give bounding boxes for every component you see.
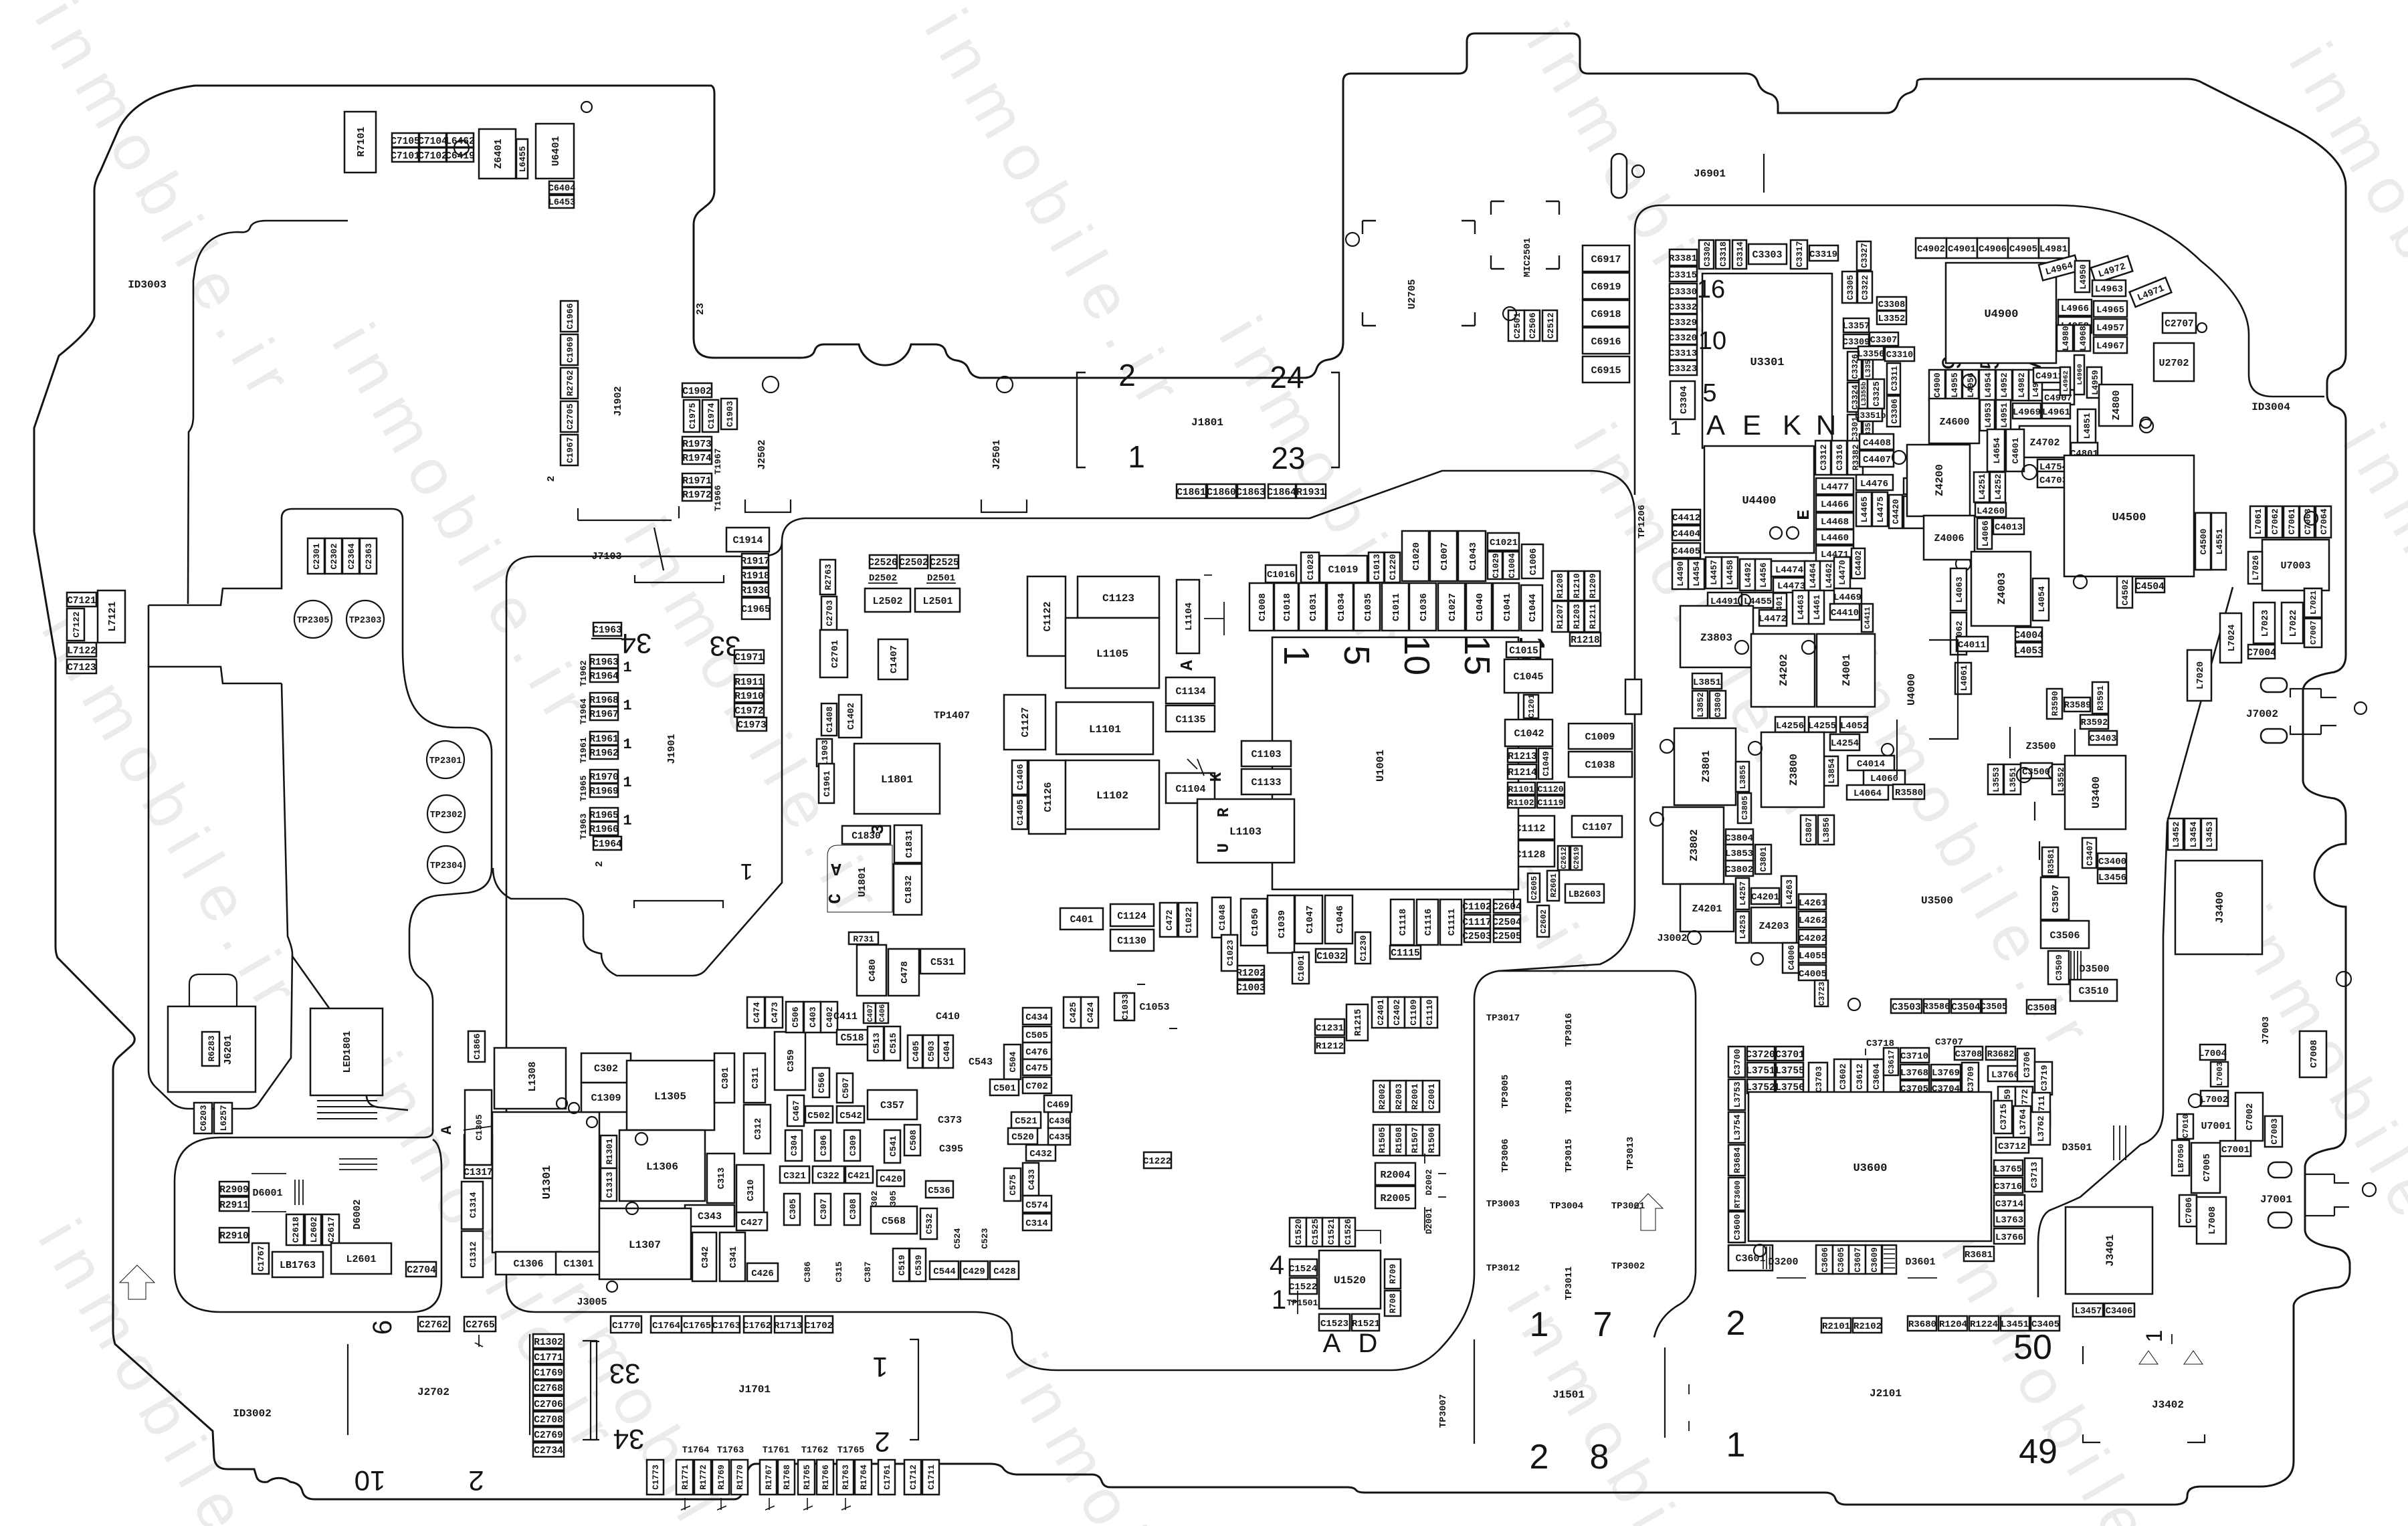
svg-text:L4980: L4980 bbox=[2062, 326, 2071, 351]
svg-text:C359: C359 bbox=[786, 1049, 797, 1072]
svg-text:L6462: L6462 bbox=[445, 136, 475, 147]
svg-text:L4458: L4458 bbox=[1726, 560, 1735, 585]
svg-text:K: K bbox=[1783, 409, 1801, 441]
svg-text:R1931: R1931 bbox=[1296, 487, 1326, 498]
svg-text:C3311: C3311 bbox=[1890, 366, 1900, 391]
svg-text:C428: C428 bbox=[993, 1267, 1016, 1277]
svg-text:C7101: C7101 bbox=[391, 151, 420, 162]
svg-text:R3684: R3684 bbox=[1732, 1147, 1742, 1173]
svg-text:C1975: C1975 bbox=[688, 403, 698, 429]
svg-text:23: 23 bbox=[695, 303, 706, 315]
svg-text:C2703: C2703 bbox=[825, 600, 835, 626]
svg-text:J6201: J6201 bbox=[223, 1034, 234, 1065]
svg-text:C3330: C3330 bbox=[1669, 287, 1697, 298]
svg-text:C1231: C1231 bbox=[1316, 1023, 1344, 1034]
svg-text:R1772: R1772 bbox=[699, 1464, 708, 1490]
svg-text:C7002: C7002 bbox=[2245, 1103, 2255, 1131]
svg-text:R1505: R1505 bbox=[1377, 1127, 1387, 1153]
svg-text:D2001: D2001 bbox=[1424, 1208, 1434, 1234]
svg-text:C1009: C1009 bbox=[1585, 732, 1615, 743]
svg-text:Z4201: Z4201 bbox=[1692, 903, 1722, 915]
svg-text:L4967: L4967 bbox=[2096, 341, 2124, 352]
svg-text:C1048: C1048 bbox=[1217, 904, 1227, 930]
svg-text:C387: C387 bbox=[863, 1261, 873, 1282]
svg-text:C6918: C6918 bbox=[1591, 309, 1621, 320]
svg-text:L4654: L4654 bbox=[1992, 437, 2002, 463]
svg-text:J1801: J1801 bbox=[1191, 417, 1223, 429]
svg-text:R709: R709 bbox=[1389, 1264, 1398, 1284]
svg-text:C1126: C1126 bbox=[1043, 782, 1054, 812]
svg-text:C1110: C1110 bbox=[1425, 999, 1435, 1025]
svg-text:L4952: L4952 bbox=[2000, 372, 2009, 398]
svg-text:C1230: C1230 bbox=[1359, 935, 1369, 961]
svg-text:C3322: C3322 bbox=[1861, 275, 1870, 300]
svg-text:3: 3 bbox=[868, 824, 888, 835]
svg-text:C3807: C3807 bbox=[1805, 817, 1814, 843]
svg-text:C1313: C1313 bbox=[605, 1172, 615, 1198]
svg-text:C357: C357 bbox=[880, 1100, 904, 1111]
svg-text:L4263: L4263 bbox=[1785, 879, 1795, 905]
svg-text:C7061: C7061 bbox=[2287, 508, 2297, 534]
svg-text:C4502: C4502 bbox=[2120, 579, 2130, 605]
svg-text:L4066: L4066 bbox=[1981, 520, 1991, 546]
svg-text:R1970: R1970 bbox=[589, 772, 619, 783]
svg-text:C1201: C1201 bbox=[1527, 694, 1536, 718]
svg-text:C502: C502 bbox=[807, 1111, 830, 1121]
svg-text:L1801: L1801 bbox=[881, 774, 913, 786]
svg-text:C4500: C4500 bbox=[2199, 528, 2209, 554]
svg-text:R2002: R2002 bbox=[1377, 1083, 1387, 1109]
svg-text:C1036: C1036 bbox=[1419, 593, 1429, 621]
svg-text:D2502: D2502 bbox=[869, 573, 897, 584]
svg-text:R1968: R1968 bbox=[589, 695, 619, 706]
svg-text:C4405: C4405 bbox=[1672, 546, 1700, 557]
svg-text:C4905: C4905 bbox=[2009, 244, 2037, 255]
svg-text:C401: C401 bbox=[1070, 915, 1094, 925]
svg-text:L3768: L3768 bbox=[1900, 1068, 1928, 1079]
svg-text:L2602: L2602 bbox=[309, 1216, 319, 1242]
svg-text:C3314: C3314 bbox=[1736, 241, 1745, 267]
svg-text:Z4202: Z4202 bbox=[1778, 654, 1790, 686]
svg-text:C1967: C1967 bbox=[565, 437, 575, 463]
svg-text:C4006: C4006 bbox=[1787, 945, 1797, 970]
svg-text:C2364: C2364 bbox=[346, 543, 357, 569]
svg-text:C3327: C3327 bbox=[1860, 243, 1870, 268]
svg-text:J1501: J1501 bbox=[1552, 1389, 1585, 1401]
svg-text:C1111: C1111 bbox=[1447, 909, 1458, 936]
svg-text:C1767: C1767 bbox=[256, 1245, 266, 1271]
svg-text:L1105: L1105 bbox=[1096, 648, 1128, 660]
svg-text:T1967: T1967 bbox=[713, 448, 723, 474]
svg-text:C1524: C1524 bbox=[1289, 1264, 1317, 1275]
svg-text:C427: C427 bbox=[740, 1218, 763, 1228]
svg-text:R1209: R1209 bbox=[1589, 573, 1598, 598]
svg-text:C1116: C1116 bbox=[1424, 909, 1434, 936]
svg-text:C575: C575 bbox=[1008, 1174, 1018, 1195]
svg-text:L4470: L4470 bbox=[1838, 560, 1847, 585]
svg-text:D6001: D6001 bbox=[252, 1188, 282, 1199]
svg-text:C3308: C3308 bbox=[1878, 300, 1906, 310]
svg-text:C7004: C7004 bbox=[2247, 648, 2276, 659]
svg-text:C519: C519 bbox=[897, 1255, 907, 1275]
svg-text:C1020: C1020 bbox=[1411, 542, 1422, 570]
svg-text:C7001: C7001 bbox=[2221, 1145, 2249, 1156]
svg-text:J1901: J1901 bbox=[666, 734, 678, 764]
svg-text:C1018: C1018 bbox=[1282, 593, 1293, 621]
svg-text:L4456: L4456 bbox=[1759, 562, 1769, 588]
svg-text:TP1206: TP1206 bbox=[1637, 505, 1647, 538]
svg-text:R1301: R1301 bbox=[605, 1138, 615, 1164]
svg-text:C2701: C2701 bbox=[830, 640, 841, 668]
svg-text:L3763: L3763 bbox=[1995, 1215, 2023, 1226]
svg-text:TP3005: TP3005 bbox=[1500, 1075, 1511, 1108]
svg-text:C308: C308 bbox=[848, 1198, 858, 1219]
svg-text:R3590: R3590 bbox=[2051, 691, 2060, 716]
svg-text:TP3002: TP3002 bbox=[1611, 1261, 1645, 1272]
svg-text:Z4800: Z4800 bbox=[2111, 390, 2122, 420]
svg-text:C2301: C2301 bbox=[312, 543, 322, 569]
svg-text:C410: C410 bbox=[936, 1011, 960, 1022]
svg-text:C4420: C4420 bbox=[1892, 499, 1901, 524]
svg-text:L4477: L4477 bbox=[1821, 482, 1849, 493]
svg-text:C1405: C1405 bbox=[1015, 799, 1025, 825]
svg-text:C1046: C1046 bbox=[1335, 905, 1346, 934]
svg-text:C4005: C4005 bbox=[1799, 969, 1827, 980]
svg-text:C3715: C3715 bbox=[1999, 1103, 2009, 1129]
svg-text:C311: C311 bbox=[751, 1067, 761, 1089]
svg-text:C3713: C3713 bbox=[2029, 1162, 2039, 1188]
svg-text:R1769: R1769 bbox=[717, 1464, 726, 1490]
svg-text:L1305: L1305 bbox=[654, 1091, 686, 1103]
svg-text:L4963: L4963 bbox=[2095, 284, 2123, 295]
svg-text:L4260: L4260 bbox=[1977, 506, 2005, 517]
svg-text:C3310: C3310 bbox=[1886, 350, 1914, 360]
svg-text:C341: C341 bbox=[729, 1246, 739, 1268]
svg-text:J2101: J2101 bbox=[1870, 1388, 1902, 1400]
svg-text:L7002: L7002 bbox=[2200, 1095, 2228, 1105]
svg-text:R1770: R1770 bbox=[736, 1464, 745, 1490]
svg-text:D: D bbox=[1359, 1329, 1378, 1358]
svg-text:C3801: C3801 bbox=[1759, 847, 1769, 872]
svg-text:C524: C524 bbox=[952, 1228, 963, 1248]
svg-text:C3712: C3712 bbox=[1998, 1141, 2026, 1152]
svg-text:R3589: R3589 bbox=[2064, 701, 2092, 711]
svg-text:C4911: C4911 bbox=[2035, 371, 2064, 382]
svg-text:L4054: L4054 bbox=[2037, 586, 2047, 612]
svg-text:C3600: C3600 bbox=[1732, 1214, 1742, 1240]
svg-text:10: 10 bbox=[1698, 327, 1726, 355]
svg-text:L3457: L3457 bbox=[2075, 1307, 2102, 1317]
svg-text:C539: C539 bbox=[914, 1255, 924, 1275]
svg-text:1: 1 bbox=[623, 812, 631, 829]
svg-text:L3769: L3769 bbox=[1932, 1068, 1960, 1079]
svg-text:L3852: L3852 bbox=[1696, 692, 1706, 718]
svg-text:C1762: C1762 bbox=[743, 1321, 771, 1331]
svg-text:ID3003: ID3003 bbox=[128, 279, 167, 291]
svg-text:R1713: R1713 bbox=[774, 1321, 802, 1331]
svg-text:C3329: C3329 bbox=[1669, 318, 1697, 328]
svg-text:J7002: J7002 bbox=[2246, 708, 2278, 720]
svg-text:L7020: L7020 bbox=[2195, 661, 2206, 689]
svg-text:L4472: L4472 bbox=[1759, 614, 1787, 625]
svg-text:L1308: L1308 bbox=[527, 1061, 538, 1091]
svg-text:L6257: L6257 bbox=[219, 1105, 229, 1131]
svg-text:C521: C521 bbox=[1015, 1116, 1037, 1127]
svg-text:C4410: C4410 bbox=[1831, 608, 1859, 619]
svg-text:C4202: C4202 bbox=[1799, 934, 1827, 944]
svg-text:J6901: J6901 bbox=[1694, 168, 1726, 180]
svg-text:L3762: L3762 bbox=[2036, 1115, 2046, 1141]
svg-text:C307: C307 bbox=[819, 1198, 829, 1219]
svg-text:R1766: R1766 bbox=[821, 1464, 831, 1490]
svg-text:R2601: R2601 bbox=[1549, 873, 1559, 897]
svg-text:L4950: L4950 bbox=[2079, 264, 2088, 290]
svg-text:TP3018: TP3018 bbox=[1564, 1080, 1575, 1113]
svg-text:L7021: L7021 bbox=[2309, 590, 2318, 615]
svg-text:C1039: C1039 bbox=[1277, 910, 1288, 938]
svg-text:L4061: L4061 bbox=[1959, 665, 1969, 691]
svg-text:TP2304: TP2304 bbox=[430, 861, 463, 871]
svg-text:C1122: C1122 bbox=[1042, 601, 1053, 631]
svg-text:C4902: C4902 bbox=[1917, 244, 1945, 255]
svg-text:L4253: L4253 bbox=[1738, 915, 1748, 939]
svg-text:L4254: L4254 bbox=[1831, 738, 1859, 749]
svg-text:U6401: U6401 bbox=[550, 136, 562, 166]
svg-text:L4490: L4490 bbox=[1676, 561, 1686, 586]
svg-text:C2504: C2504 bbox=[1492, 917, 1522, 928]
svg-text:T1964: T1964 bbox=[579, 698, 589, 724]
svg-text:C2619: C2619 bbox=[1573, 847, 1581, 869]
svg-text:C1765: C1765 bbox=[683, 1321, 711, 1331]
svg-text:L7003: L7003 bbox=[2215, 1062, 2225, 1086]
svg-text:TP3004: TP3004 bbox=[1550, 1201, 1583, 1212]
svg-text:C1522: C1522 bbox=[1289, 1282, 1317, 1293]
svg-text:TP3003: TP3003 bbox=[1486, 1199, 1520, 1210]
svg-text:C3405: C3405 bbox=[2031, 1319, 2060, 1330]
svg-text:24: 24 bbox=[1270, 360, 1304, 395]
svg-text:C1521: C1521 bbox=[1326, 1218, 1336, 1244]
svg-text:U4000: U4000 bbox=[1906, 673, 1918, 705]
svg-text:L7004: L7004 bbox=[2199, 1049, 2227, 1059]
svg-text:C508: C508 bbox=[908, 1129, 918, 1150]
svg-text:C3302: C3302 bbox=[1703, 241, 1712, 267]
svg-text:C1222: C1222 bbox=[1143, 1156, 1171, 1167]
svg-text:R7101: R7101 bbox=[356, 126, 367, 156]
svg-text:T1765: T1765 bbox=[837, 1446, 865, 1456]
svg-text:L4965: L4965 bbox=[2096, 305, 2124, 316]
svg-text:Z6401: Z6401 bbox=[493, 138, 504, 169]
svg-text:R: R bbox=[1215, 807, 1233, 817]
svg-text:C2402: C2402 bbox=[1392, 999, 1402, 1025]
svg-text:L4052: L4052 bbox=[1840, 721, 1868, 732]
svg-text:C1107: C1107 bbox=[1582, 822, 1612, 833]
svg-text:Z3500: Z3500 bbox=[2025, 741, 2055, 752]
svg-text:R2004: R2004 bbox=[1380, 1170, 1410, 1181]
svg-text:C3506: C3506 bbox=[2049, 930, 2080, 942]
svg-text:R1203: R1203 bbox=[1573, 604, 1582, 629]
svg-text:R1930: R1930 bbox=[740, 586, 770, 596]
svg-text:L2501: L2501 bbox=[922, 596, 952, 607]
svg-text:49: 49 bbox=[2019, 1432, 2058, 1471]
svg-text:R1967: R1967 bbox=[589, 710, 619, 720]
svg-text:L3760: L3760 bbox=[1991, 1070, 2019, 1081]
svg-text:MIC2501: MIC2501 bbox=[1522, 238, 1533, 278]
svg-text:L3751: L3751 bbox=[1746, 1066, 1775, 1077]
svg-text:C411: C411 bbox=[833, 1011, 858, 1022]
svg-text:J3002: J3002 bbox=[1657, 933, 1687, 944]
svg-text:C426: C426 bbox=[751, 1269, 774, 1279]
svg-text:C3714: C3714 bbox=[1995, 1199, 2023, 1210]
svg-text:R1102: R1102 bbox=[1508, 798, 1534, 808]
svg-text:L1104: L1104 bbox=[1184, 603, 1195, 631]
svg-text:L3764: L3764 bbox=[2018, 1109, 2028, 1135]
svg-text:1: 1 bbox=[623, 736, 631, 753]
svg-text:Z4003: Z4003 bbox=[1996, 572, 2008, 605]
svg-text:R3381: R3381 bbox=[1669, 253, 1697, 264]
svg-text:C7008: C7008 bbox=[2309, 1040, 2320, 1068]
svg-text:R731: R731 bbox=[853, 934, 874, 944]
svg-text:R1965: R1965 bbox=[589, 810, 619, 821]
svg-text:C2706: C2706 bbox=[534, 1400, 563, 1410]
svg-text:N: N bbox=[1816, 409, 1836, 441]
svg-text:50: 50 bbox=[2013, 1328, 2052, 1367]
svg-text:C1117: C1117 bbox=[1462, 917, 1492, 928]
svg-text:J3005: J3005 bbox=[577, 1297, 607, 1308]
svg-text:C7010: C7010 bbox=[2181, 1114, 2191, 1138]
svg-text:Z4600: Z4600 bbox=[1939, 417, 1969, 428]
svg-text:C3306: C3306 bbox=[1890, 399, 1900, 424]
svg-text:C2604: C2604 bbox=[1492, 902, 1522, 913]
svg-text:C536: C536 bbox=[928, 1186, 950, 1196]
svg-text:L4982: L4982 bbox=[2017, 372, 2027, 398]
svg-text:C7123: C7123 bbox=[67, 663, 96, 673]
svg-text:C3716: C3716 bbox=[1994, 1182, 2022, 1192]
svg-text:C1034: C1034 bbox=[1336, 593, 1347, 621]
svg-text:C1008: C1008 bbox=[1258, 593, 1268, 621]
svg-text:C2525: C2525 bbox=[930, 558, 959, 568]
svg-text:C3706: C3706 bbox=[2022, 1051, 2032, 1077]
svg-text:C315: C315 bbox=[834, 1261, 844, 1282]
svg-text:C: C bbox=[825, 893, 845, 904]
svg-text:C7006: C7006 bbox=[2184, 1197, 2194, 1223]
svg-text:R1508: R1508 bbox=[1394, 1127, 1404, 1153]
svg-text:L3456: L3456 bbox=[2098, 873, 2126, 883]
svg-text:C478: C478 bbox=[900, 961, 910, 984]
svg-text:C301: C301 bbox=[721, 1067, 731, 1089]
svg-text:C1004: C1004 bbox=[1508, 553, 1517, 578]
svg-text:C1964: C1964 bbox=[593, 839, 622, 850]
svg-text:C6919: C6919 bbox=[1591, 282, 1621, 293]
svg-text:L4063: L4063 bbox=[1954, 576, 1965, 603]
svg-text:C3802: C3802 bbox=[1725, 865, 1753, 875]
svg-text:C523: C523 bbox=[980, 1228, 990, 1248]
svg-text:C3709: C3709 bbox=[1966, 1066, 1976, 1092]
svg-text:R1763: R1763 bbox=[841, 1464, 851, 1490]
svg-text:L4954: L4954 bbox=[1984, 372, 1993, 398]
svg-text:C310: C310 bbox=[746, 1180, 757, 1201]
svg-text:C6203: C6203 bbox=[199, 1105, 209, 1131]
svg-text:C4201: C4201 bbox=[1751, 892, 1779, 903]
svg-text:L4252: L4252 bbox=[1993, 473, 2003, 500]
svg-text:C1965: C1965 bbox=[741, 605, 771, 615]
svg-text:R1506: R1506 bbox=[1427, 1127, 1437, 1153]
svg-text:L1307: L1307 bbox=[629, 1239, 661, 1251]
svg-text:2: 2 bbox=[546, 475, 557, 481]
svg-text:C476: C476 bbox=[1025, 1047, 1048, 1058]
svg-text:C474: C474 bbox=[752, 1002, 762, 1022]
svg-text:J7003: J7003 bbox=[2261, 1016, 2272, 1045]
svg-text:R1211: R1211 bbox=[1589, 604, 1598, 629]
svg-text:J2502: J2502 bbox=[757, 439, 768, 469]
svg-text:T1965: T1965 bbox=[579, 775, 589, 801]
svg-text:C1120: C1120 bbox=[1537, 784, 1563, 794]
svg-text:R1212: R1212 bbox=[1316, 1041, 1344, 1052]
svg-text:R2909: R2909 bbox=[219, 1185, 249, 1196]
svg-text:L4953: L4953 bbox=[1984, 403, 1993, 428]
svg-text:C421: C421 bbox=[847, 1171, 870, 1182]
svg-text:C566: C566 bbox=[817, 1072, 827, 1093]
svg-text:15: 15 bbox=[1457, 635, 1497, 675]
svg-text:C2734: C2734 bbox=[534, 1446, 563, 1456]
svg-text:L3356: L3356 bbox=[1858, 350, 1885, 360]
svg-text:C3305: C3305 bbox=[1846, 275, 1855, 300]
svg-text:C3319: C3319 bbox=[1809, 249, 1837, 260]
svg-text:C1118: C1118 bbox=[1399, 909, 1409, 936]
svg-text:C1309: C1309 bbox=[591, 1093, 621, 1104]
svg-text:1: 1 bbox=[1670, 417, 1682, 439]
svg-text:C2705: C2705 bbox=[565, 403, 575, 429]
svg-text:R3680: R3680 bbox=[1908, 1319, 1936, 1330]
svg-text:L4969: L4969 bbox=[2013, 407, 2041, 418]
svg-text:L7023: L7023 bbox=[2261, 610, 2271, 637]
svg-text:1: 1 bbox=[872, 1351, 888, 1383]
svg-text:C1973: C1973 bbox=[737, 720, 767, 731]
svg-text:C520: C520 bbox=[1011, 1132, 1034, 1143]
svg-text:C2526: C2526 bbox=[868, 558, 898, 568]
svg-text:C1831: C1831 bbox=[904, 830, 915, 858]
svg-text:C469: C469 bbox=[1047, 1100, 1070, 1111]
svg-text:C3508: C3508 bbox=[2027, 1003, 2055, 1014]
svg-text:T1763: T1763 bbox=[717, 1446, 744, 1456]
svg-text:1: 1 bbox=[1128, 439, 1145, 474]
svg-text:TP3013: TP3013 bbox=[1625, 1137, 1636, 1170]
svg-text:C4404: C4404 bbox=[1672, 529, 1700, 540]
svg-text:C1028: C1028 bbox=[1306, 554, 1316, 580]
svg-text:L3551: L3551 bbox=[2009, 767, 2018, 792]
svg-text:C3312: C3312 bbox=[1819, 444, 1829, 470]
svg-text:T1962: T1962 bbox=[579, 660, 589, 686]
svg-text:C3400: C3400 bbox=[2098, 857, 2126, 867]
svg-text:U7001: U7001 bbox=[2201, 1121, 2231, 1132]
svg-text:C541: C541 bbox=[888, 1135, 898, 1156]
svg-text:L3855: L3855 bbox=[1738, 765, 1748, 789]
svg-text:U1301: U1301 bbox=[541, 1165, 554, 1199]
svg-text:L3851: L3851 bbox=[1693, 677, 1721, 688]
svg-text:C480: C480 bbox=[868, 959, 878, 982]
svg-text:K: K bbox=[1208, 772, 1226, 782]
svg-text:C501: C501 bbox=[993, 1083, 1016, 1094]
svg-text:C1763: C1763 bbox=[712, 1321, 740, 1331]
svg-text:L3451: L3451 bbox=[2001, 1319, 2029, 1330]
svg-text:C342: C342 bbox=[701, 1246, 711, 1268]
svg-text:C403: C403 bbox=[808, 1006, 818, 1027]
svg-text:C322: C322 bbox=[817, 1171, 839, 1182]
svg-text:ID3002: ID3002 bbox=[233, 1408, 272, 1420]
svg-text:C1971: C1971 bbox=[734, 653, 764, 663]
svg-text:J3402: J3402 bbox=[2152, 1399, 2184, 1411]
svg-text:R1962: R1962 bbox=[589, 748, 619, 759]
svg-text:Z4001: Z4001 bbox=[1841, 654, 1853, 686]
